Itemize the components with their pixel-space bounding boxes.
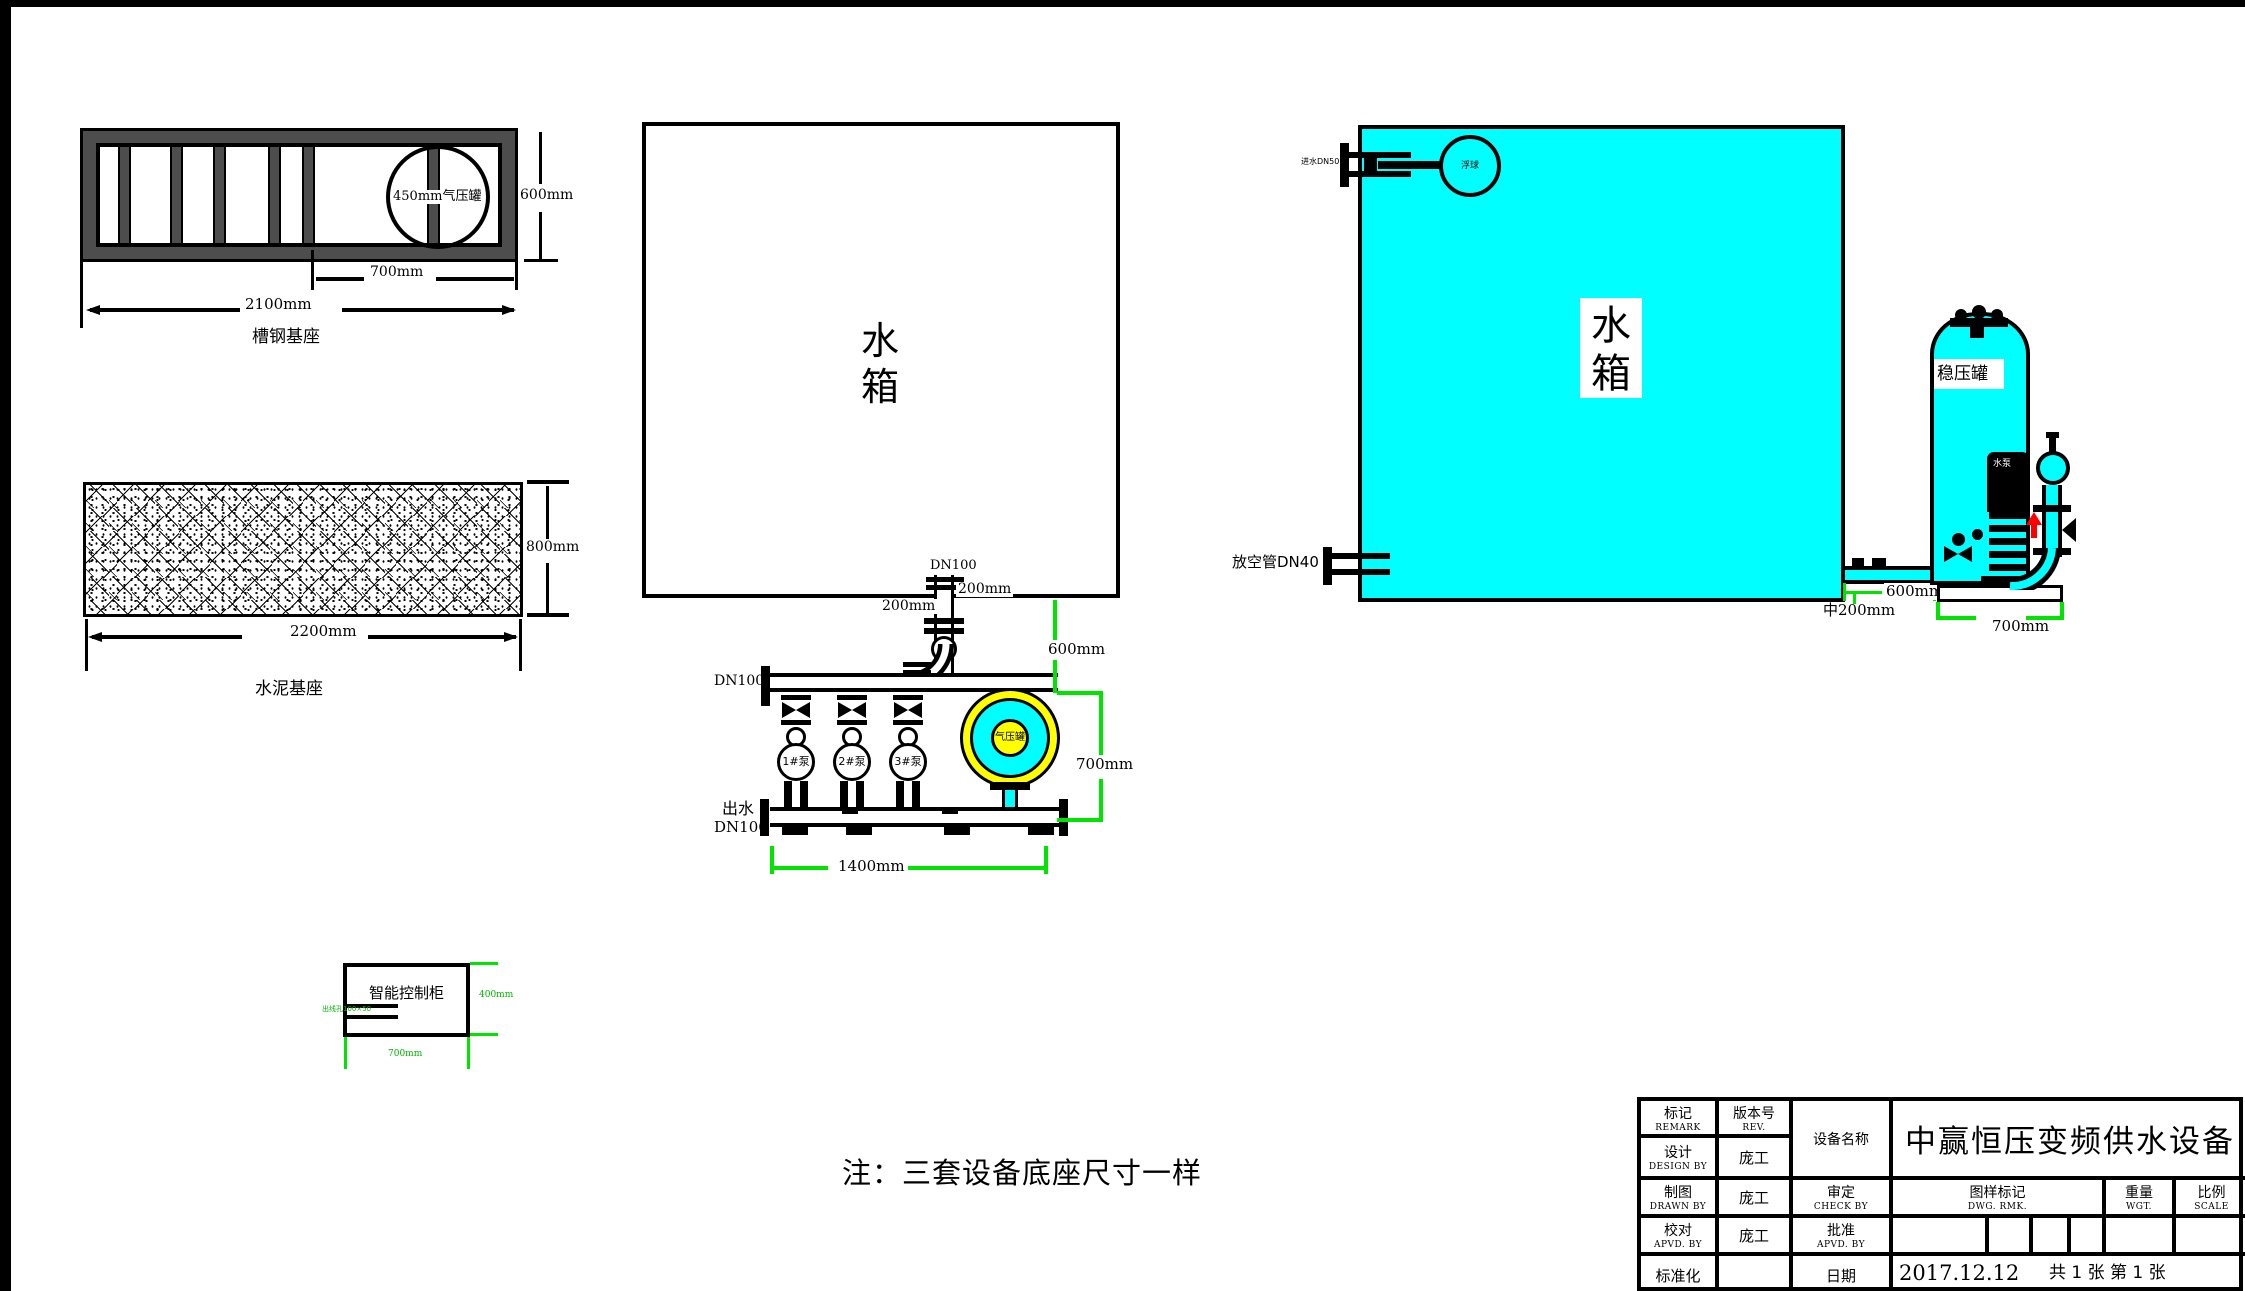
dim-400: 400mm <box>479 991 513 1001</box>
dwg-en: DWG. RMK. <box>1968 1202 2027 1212</box>
dim-700-base: 700mm <box>1992 618 2049 635</box>
control-cabinet-label: 智能控制柜 <box>369 985 444 1002</box>
dim-line <box>311 250 314 290</box>
channel-base-caption: 槽钢基座 <box>252 328 320 347</box>
suction-pipe <box>934 575 954 678</box>
valve-icon <box>894 702 922 718</box>
pipe-fitting <box>1972 529 1983 540</box>
suction-manifold <box>770 673 1058 692</box>
flange <box>893 695 923 700</box>
cell-title: 中赢恒压变频供水设备 <box>1893 1101 2245 1176</box>
dim-1400-width: 1400mm <box>838 858 905 875</box>
water-tank-side-label: 水箱 <box>1587 302 1635 398</box>
approve-en: APVD. BY <box>1817 1240 1865 1250</box>
channel-rib <box>170 145 183 245</box>
dim-line <box>90 308 240 312</box>
valve-wheel <box>931 636 957 662</box>
offset-left-label: 200mm <box>880 599 937 614</box>
rev-cn: 版本号 <box>1733 1103 1775 1123</box>
frame-top-border <box>0 0 2245 7</box>
pipe-fitting <box>1952 533 1965 546</box>
flange <box>926 577 964 582</box>
flange <box>1340 143 1349 187</box>
dim-line-green <box>1099 779 1103 822</box>
weight-en: WGT. <box>2126 1202 2152 1212</box>
dwg-cn: 图样标记 <box>1970 1182 2026 1202</box>
pump-motor <box>1987 452 2029 512</box>
water-tank-label-box <box>1580 298 1642 398</box>
surge-tank-knob <box>1991 309 2003 321</box>
elbow-pipe <box>898 640 958 696</box>
device-name-label: 设备名称 <box>1813 1129 1869 1149</box>
rev-en: REV. <box>1742 1123 1765 1133</box>
skid-foot <box>782 827 808 835</box>
dim-line <box>524 259 558 262</box>
cement-base-caption: 水泥基座 <box>255 680 323 699</box>
gauge-cap <box>2046 432 2059 438</box>
flange <box>924 628 964 634</box>
water-tank-front <box>642 122 1120 598</box>
dim-line <box>515 262 518 290</box>
pipe-nub <box>1852 558 1864 566</box>
dim-arrow <box>88 632 102 642</box>
dim-line-green <box>470 962 498 965</box>
flange <box>837 695 867 700</box>
cell-remark: 标记 REMARK <box>1641 1101 1715 1134</box>
flow-arrow-stem <box>2031 524 2037 538</box>
outlet-pipe-side <box>1845 566 1937 584</box>
inlet-pipe-line <box>1349 152 1411 158</box>
designer1-name: 庞工 <box>1739 1147 1769 1168</box>
elbow-pipe <box>2000 548 2062 590</box>
dim-line <box>80 256 83 328</box>
flange <box>926 585 964 590</box>
approve-cn: 批准 <box>1827 1220 1855 1240</box>
equipment-base <box>1937 585 2063 602</box>
dim-line-green <box>2026 616 2062 620</box>
cell-date-label: 日期 <box>1793 1256 1889 1291</box>
pump-leg <box>784 781 792 808</box>
inlet-valve <box>1364 157 1377 173</box>
pressure-gauge <box>2036 451 2070 485</box>
pipe-nub <box>842 808 858 814</box>
cell-dwg-rmk: 图样标记 DWG. RMK. <box>1893 1180 2102 1214</box>
cement-base-body <box>83 482 523 617</box>
cable-slot-line <box>343 1004 398 1008</box>
check-cn: 审定 <box>1827 1182 1855 1202</box>
dim-line-green <box>1053 600 1057 640</box>
dim-800: 800mm <box>524 540 581 555</box>
air-tank-outer <box>960 688 1060 788</box>
air-tank-label: 气压罐 <box>991 719 1029 757</box>
cell-std: 标准化 <box>1641 1256 1715 1291</box>
surge-tank-label: 稳压罐 <box>1937 365 1988 384</box>
check-valve <box>786 727 806 747</box>
remark-cn: 标记 <box>1664 1103 1692 1123</box>
pump-leg <box>856 781 864 808</box>
pump-circle <box>889 743 927 781</box>
float-ball <box>1439 135 1501 197</box>
dim-line-green <box>2060 602 2064 620</box>
dim-line-green <box>470 1033 498 1036</box>
grid-line <box>1985 1214 1989 1256</box>
dim-line-green <box>467 1037 470 1069</box>
channel-base-frame <box>80 128 518 262</box>
skid-foot <box>1028 827 1054 835</box>
date-label: 日期 <box>1826 1265 1856 1286</box>
flange <box>781 695 811 700</box>
flange <box>893 720 923 725</box>
flange <box>990 782 1030 790</box>
dim-arrow <box>86 305 100 315</box>
grid-line <box>2067 1214 2071 1256</box>
cell-device-name: 设备名称 <box>1793 1101 1889 1176</box>
water-tank-side <box>1358 125 1845 602</box>
pump-leg <box>896 781 904 808</box>
channel-rib <box>268 145 281 245</box>
flange <box>2033 548 2071 555</box>
scale-en: SCALE <box>2194 1202 2229 1212</box>
skid-foot <box>944 827 970 835</box>
pump-leg <box>800 781 808 808</box>
outlet-dn-label: DN100 <box>714 819 768 836</box>
draw-cn: 制图 <box>1664 1182 1692 1202</box>
channel-rib <box>302 145 315 245</box>
dim-line-green <box>1940 616 1976 620</box>
flow-arrow-icon <box>2026 512 2042 525</box>
design-en: DESIGN BY <box>1649 1162 1707 1172</box>
flange <box>924 618 964 624</box>
dim-600: 600mm <box>518 188 575 203</box>
inlet-dn-label: DN100 <box>928 559 979 573</box>
pump-motor-label: 水泵 <box>1993 460 2011 470</box>
dim-line-green <box>1853 594 1856 604</box>
grid-line <box>2029 1214 2033 1256</box>
dim-line <box>316 277 364 281</box>
surge-tank-knob <box>1972 305 1986 319</box>
air-tank-core <box>991 719 1029 757</box>
air-tank-ring <box>970 698 1050 778</box>
dim-line <box>436 277 514 281</box>
check-en: CHECK BY <box>1814 1202 1868 1212</box>
sheet-info: 共 1 张 第 1 张 <box>2049 1264 2166 1283</box>
cell-draw: 制图 DRAWN BY <box>1641 1180 1715 1214</box>
channel-base-inner <box>96 143 502 247</box>
dim-line <box>546 486 549 539</box>
dim-line <box>539 212 542 261</box>
dim-line-green <box>1846 591 1882 594</box>
pump-leg <box>840 781 848 808</box>
dim-2100: 2100mm <box>245 296 312 313</box>
air-tank-footprint-label: 450mm气压罐 <box>391 190 483 204</box>
dim-pipe-label: 中200mm <box>1823 602 1895 619</box>
draw-en: DRAWN BY <box>1650 1202 1707 1212</box>
water-tank-label: 水箱 <box>856 318 904 410</box>
dim-line-green <box>1057 818 1103 822</box>
drawing-title: 中赢恒压变频供水设备 <box>1905 1116 2235 1161</box>
pump-stage <box>1989 525 2027 532</box>
dim-line <box>519 619 522 671</box>
drain-pipe-line <box>1332 553 1390 559</box>
pump-stage <box>1989 551 2027 558</box>
surge-tank-top-bar <box>1950 318 2008 327</box>
pump-stage <box>1989 538 2027 545</box>
manifold-dn-label: DN100 <box>714 674 764 689</box>
dim-arrow <box>504 632 518 642</box>
offset-right-label: 200mm <box>956 582 1013 597</box>
design-cn: 设计 <box>1664 1142 1692 1162</box>
cell-designer2: 庞工 <box>1719 1180 1789 1214</box>
weight-cn: 重量 <box>2125 1182 2153 1202</box>
pump-circle <box>777 743 815 781</box>
date-value: 2017.12.12 <box>1899 1262 2019 1285</box>
drain-pipe-label: 放空管DN40 <box>1232 554 1319 571</box>
cell-rev: 版本号 REV. <box>1719 1101 1789 1134</box>
cell-scale: 比例 SCALE <box>2176 1180 2245 1214</box>
pump-label: 3#泵 <box>889 743 927 781</box>
flange <box>837 720 867 725</box>
pump-leg <box>912 781 920 808</box>
drain-pipe-line <box>1332 569 1390 575</box>
outlet-label: 出水 <box>722 800 754 818</box>
dim-600-drop: 600mm <box>1046 641 1107 658</box>
dim-line-green <box>772 866 828 870</box>
check-valve <box>898 727 918 747</box>
dim-line-green <box>1057 691 1103 695</box>
dim-line-green <box>908 866 1046 870</box>
dim-line-green <box>1936 602 1940 620</box>
pump-stage <box>1989 512 2027 519</box>
discharge-pipe <box>2042 485 2062 557</box>
title-block: 标记 REMARK 版本号 REV. 设备名称 中赢恒压变频供水设备 设计 DE… <box>1637 1097 2243 1291</box>
channel-rib <box>118 145 131 245</box>
surge-tank-label-box <box>1934 359 2004 389</box>
std-label: 标准化 <box>1655 1265 1700 1286</box>
check-valve <box>842 727 862 747</box>
grid-line <box>1641 1252 2245 1256</box>
designer3-name: 庞工 <box>1739 1225 1769 1246</box>
dim-line-green <box>1053 660 1057 693</box>
cable-slot-note: 出线孔100×50 <box>322 1006 371 1014</box>
valve-icon <box>1944 546 1972 562</box>
flange <box>781 720 811 725</box>
flange <box>1323 547 1332 585</box>
pump-circle <box>833 743 871 781</box>
proof-cn: 校对 <box>1664 1220 1692 1240</box>
cell-proof: 校对 APVD. BY <box>1641 1218 1715 1252</box>
flange <box>2033 505 2071 512</box>
cell-approve: 批准 APVD. BY <box>1793 1218 1889 1252</box>
valve-handle-icon <box>2062 516 2076 544</box>
cell-designer3: 庞工 <box>1719 1218 1789 1252</box>
proof-en: APVD. BY <box>1654 1240 1702 1250</box>
flange <box>1059 799 1068 836</box>
inlet-pipe-line <box>1349 171 1411 177</box>
float-ball-label: 浮球 <box>1439 135 1501 197</box>
dim-line <box>92 635 242 639</box>
skid-foot <box>846 827 872 835</box>
cad-drawing-canvas: 450mm气压罐 600mm 700mm 2100mm 槽钢基座 800mm 2… <box>0 0 2245 1291</box>
surge-tank-knob <box>1955 309 1967 321</box>
dim-line <box>342 308 514 312</box>
dim-arrow <box>502 305 516 315</box>
air-tank-stub <box>1002 790 1018 808</box>
dim-line-green <box>1933 583 1936 601</box>
air-tank-footprint-circle <box>386 145 490 249</box>
surge-tank-neck <box>1970 326 1984 338</box>
dim-line <box>527 480 569 484</box>
dim-600-gap: 600mm <box>1884 583 1945 600</box>
dim-line-green <box>1843 583 1846 601</box>
flange <box>903 670 931 675</box>
cable-slot-line <box>343 1015 398 1019</box>
flange <box>761 666 770 706</box>
pump-label: 2#泵 <box>833 743 871 781</box>
cell-check: 审定 CHECK BY <box>1793 1180 1889 1214</box>
channel-rib <box>213 145 226 245</box>
dim-line-green <box>1099 693 1103 755</box>
dim-line <box>539 132 542 184</box>
dim-line-green <box>1044 846 1048 874</box>
pump-label: 1#泵 <box>777 743 815 781</box>
valve-icon <box>782 702 810 718</box>
float-arm <box>1378 161 1443 169</box>
dim-line <box>368 635 516 639</box>
surge-tank <box>1930 312 2030 585</box>
inlet-pipe-label: 进水DN50 <box>1301 158 1339 167</box>
channel-rib <box>427 145 440 245</box>
dim-line-green <box>344 1037 347 1069</box>
valve-icon <box>838 702 866 718</box>
scale-cn: 比例 <box>2198 1182 2226 1202</box>
pump-base-flange <box>1981 576 2035 585</box>
dim-700: 700mm <box>370 265 423 280</box>
dim-2200: 2200mm <box>290 623 357 640</box>
dim-line <box>527 613 569 617</box>
flange <box>903 662 931 667</box>
gauge-stem-top <box>2049 437 2056 453</box>
pump-stage <box>1989 564 2027 571</box>
pipe-nub <box>1872 558 1886 566</box>
pipe-nub <box>942 808 958 814</box>
dim-line <box>85 619 88 671</box>
cell-weight: 重量 WGT. <box>2106 1180 2172 1214</box>
cell-designer1: 庞工 <box>1719 1138 1789 1176</box>
cell-design: 设计 DESIGN BY <box>1641 1138 1715 1176</box>
dim-700-height: 700mm <box>1074 756 1135 773</box>
drawing-note: 注：三套设备底座尺寸一样 <box>842 1158 1202 1190</box>
remark-en: REMARK <box>1655 1123 1701 1133</box>
flange <box>760 799 769 836</box>
dim-line-green <box>770 846 774 874</box>
control-cabinet-body <box>343 963 470 1037</box>
designer2-name: 庞工 <box>1739 1187 1769 1208</box>
dim-700-cab: 700mm <box>388 1050 422 1060</box>
discharge-manifold <box>770 807 1060 827</box>
dim-line <box>546 563 549 613</box>
frame-left-border <box>0 0 11 1291</box>
